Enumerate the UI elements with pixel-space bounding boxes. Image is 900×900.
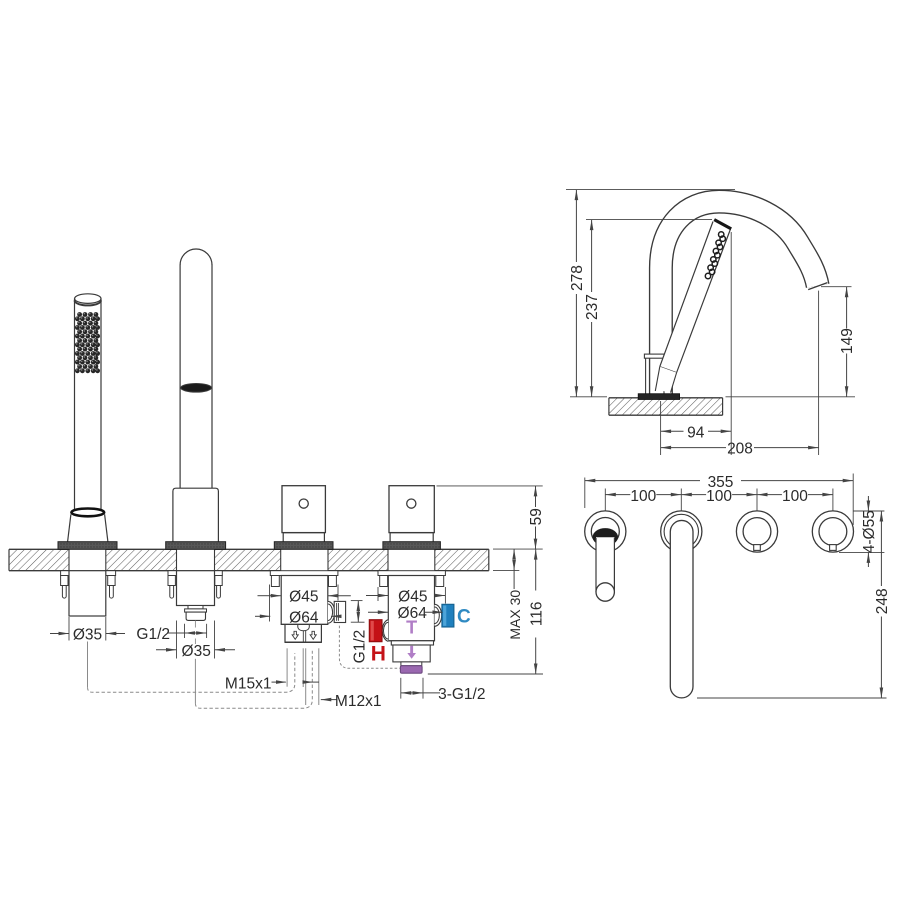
svg-text:Ø35: Ø35	[73, 627, 102, 644]
svg-text:G1/2: G1/2	[352, 630, 369, 664]
svg-text:H: H	[371, 643, 386, 666]
svg-text:237: 237	[584, 294, 601, 320]
svg-text:C: C	[457, 607, 471, 628]
svg-text:Ø64: Ø64	[289, 609, 319, 626]
svg-text:Ø45: Ø45	[289, 589, 318, 606]
svg-text:100: 100	[782, 488, 808, 505]
svg-text:Ø64: Ø64	[398, 605, 428, 622]
svg-text:4-Ø55: 4-Ø55	[861, 510, 878, 553]
svg-text:M15x1: M15x1	[225, 676, 272, 693]
svg-text:100: 100	[630, 488, 656, 505]
svg-text:G1/2: G1/2	[136, 626, 170, 643]
svg-text:Ø45: Ø45	[398, 588, 427, 605]
svg-text:149: 149	[839, 328, 856, 354]
svg-text:278: 278	[569, 265, 586, 291]
svg-text:M12x1: M12x1	[335, 693, 382, 710]
svg-text:100: 100	[706, 488, 732, 505]
svg-text:208: 208	[727, 441, 753, 458]
svg-text:MAX 30: MAX 30	[507, 590, 523, 640]
svg-text:94: 94	[687, 424, 705, 441]
svg-text:116: 116	[528, 601, 545, 626]
svg-text:248: 248	[874, 588, 891, 614]
svg-text:Ø35: Ø35	[182, 643, 211, 660]
svg-text:59: 59	[528, 508, 545, 525]
svg-text:3-G1/2: 3-G1/2	[438, 686, 485, 703]
